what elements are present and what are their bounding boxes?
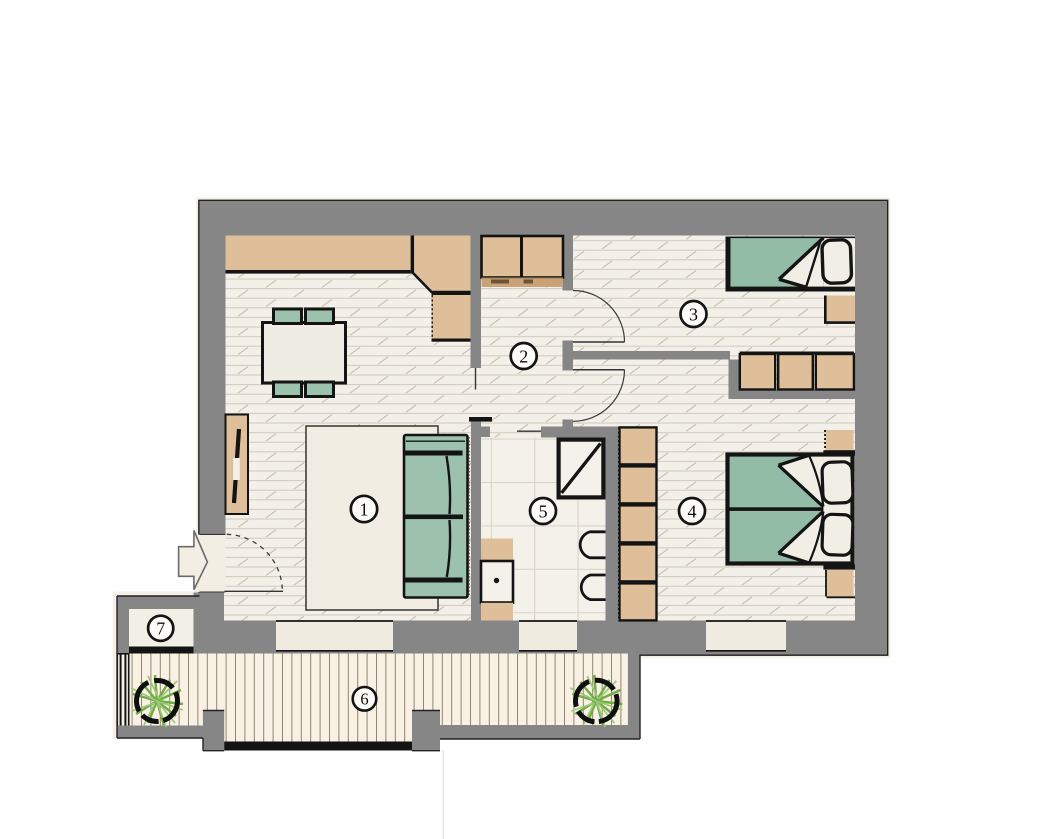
svg-text:5: 5 xyxy=(539,501,548,521)
svg-text:4: 4 xyxy=(688,501,697,521)
svg-text:7: 7 xyxy=(156,618,165,638)
svg-text:6: 6 xyxy=(360,690,368,709)
svg-text:2: 2 xyxy=(519,346,528,366)
svg-text:1: 1 xyxy=(360,499,369,519)
svg-text:3: 3 xyxy=(689,304,698,324)
